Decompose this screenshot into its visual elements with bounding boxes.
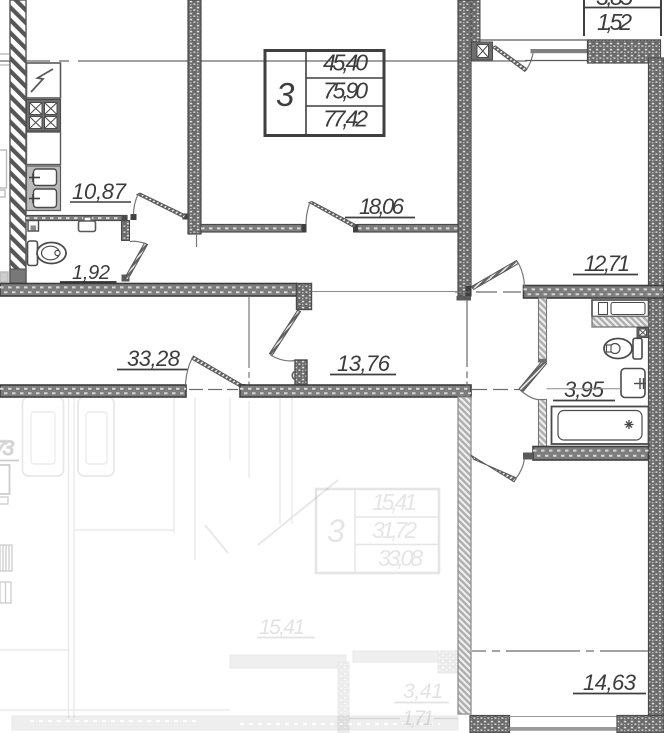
svg-text:13,76: 13,76 bbox=[337, 351, 391, 376]
svg-text:75,90: 75,90 bbox=[323, 78, 368, 104]
svg-text:1,71: 1,71 bbox=[402, 707, 434, 730]
svg-text:77,42: 77,42 bbox=[323, 106, 368, 132]
svg-text:3: 3 bbox=[327, 513, 345, 549]
svg-text:33,08: 33,08 bbox=[378, 545, 423, 571]
svg-text:14,63: 14,63 bbox=[583, 670, 637, 695]
svg-text:12,71: 12,71 bbox=[584, 251, 630, 276]
svg-text:1,92: 1,92 bbox=[72, 262, 110, 284]
svg-text:45,40: 45,40 bbox=[323, 50, 368, 76]
svg-text:3: 3 bbox=[276, 76, 295, 113]
svg-text:3,41: 3,41 bbox=[403, 680, 443, 703]
svg-text:31,72: 31,72 bbox=[372, 517, 417, 543]
svg-text:1,52: 1,52 bbox=[597, 9, 632, 35]
svg-text:15,41: 15,41 bbox=[259, 616, 305, 639]
svg-text:3,95: 3,95 bbox=[564, 377, 605, 402]
svg-text:15,41: 15,41 bbox=[372, 489, 417, 515]
svg-text:73: 73 bbox=[0, 437, 14, 460]
svg-text:10,87: 10,87 bbox=[72, 179, 127, 204]
svg-text:33,28: 33,28 bbox=[127, 346, 181, 371]
svg-text:18,06: 18,06 bbox=[359, 194, 405, 219]
